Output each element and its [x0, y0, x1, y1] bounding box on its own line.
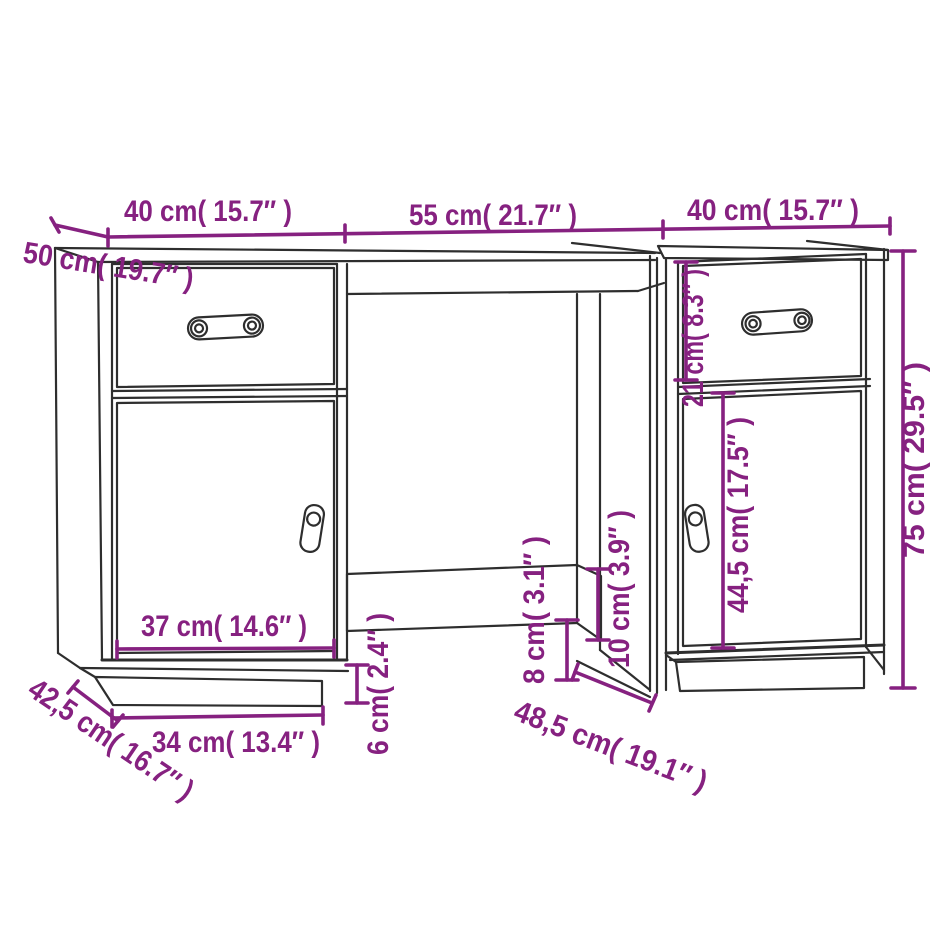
dim-label-right-drawer-height: 21 cm( 8.3″ ) [677, 269, 710, 407]
left-door-handle [299, 504, 325, 553]
right-door-handle [684, 504, 710, 553]
right-drawer-handle [741, 309, 812, 336]
right-door-front [683, 391, 861, 646]
left-side-outer-edge [55, 248, 58, 653]
dim-label-kneehole-depth: 48,5 cm( 19.1″ ) [509, 695, 711, 799]
left-divider-upper [112, 389, 347, 391]
cabinet-right-bottom-diagonal [866, 647, 884, 670]
dim-line-kneehole-depth [575, 672, 652, 703]
left-plinth-left-slope [80, 668, 95, 677]
left-plinth [95, 677, 322, 706]
dim-line-door-width [117, 648, 334, 649]
dim-line-depth [55, 225, 108, 237]
right-plinth [676, 657, 864, 691]
apron-bottom-edge [347, 291, 638, 294]
left-side-inner-edge [98, 262, 102, 660]
desktop-top-edge [55, 248, 655, 253]
dim-label-plinth-height: 6 cm( 2.4″ ) [362, 613, 395, 755]
desk-dimension-diagram: 40 cm( 15.7″ ) 55 cm( 21.7″ ) 40 cm( 15.… [0, 0, 947, 947]
dimension-lines [51, 218, 915, 727]
dim-label-top-right-width: 40 cm( 15.7″ ) [687, 194, 859, 227]
dim-label-rail-height: 10 cm( 3.9″ ) [603, 510, 636, 668]
dim-label-left-door-width: 37 cm( 14.6″ ) [141, 610, 307, 643]
dim-label-total-height: 75 cm( 29.5″ ) [898, 362, 931, 558]
dim-label-right-door-height: 44,5 cm( 17.5″ ) [722, 417, 755, 613]
dimension-diagram-canvas: 40 cm( 15.7″ ) 55 cm( 21.7″ ) 40 cm( 15.… [0, 0, 947, 947]
left-side-corner [58, 653, 80, 668]
left-divider-lower [112, 396, 347, 398]
dim-label-plinth-width: 34 cm( 13.4″ ) [152, 726, 320, 759]
left-pedestal-under-edge [80, 668, 348, 671]
dimension-labels: 40 cm( 15.7″ ) 55 cm( 21.7″ ) 40 cm( 15.… [21, 194, 931, 807]
dim-label-rail-floor-gap: 8 cm( 3.1″ ) [518, 536, 551, 684]
dim-label-top-center-width: 55 cm( 21.7″ ) [409, 199, 577, 232]
dim-line-plinth-width [112, 715, 323, 718]
dim-label-top-left-width: 40 cm( 15.7″ ) [124, 195, 292, 228]
left-drawer-handle [187, 314, 263, 340]
